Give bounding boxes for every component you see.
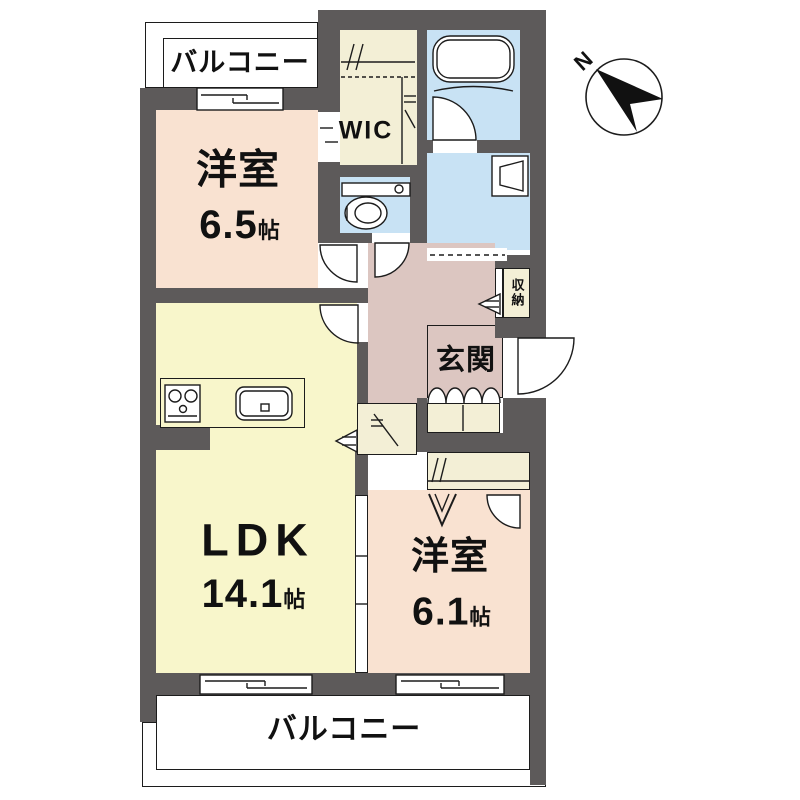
door-arc-icon bbox=[320, 305, 358, 343]
toilet-icon bbox=[342, 183, 410, 229]
genkan-label: 玄関 bbox=[436, 347, 496, 376]
ldk-closet-lines bbox=[371, 414, 398, 446]
bedroom1-size: 6.5帖 bbox=[199, 205, 281, 245]
sliding-window-icon bbox=[200, 675, 312, 694]
ldk-label: LDK bbox=[201, 518, 314, 563]
washing-machine-icon bbox=[492, 156, 528, 196]
bedroom2-size: 6.1帖 bbox=[412, 593, 492, 632]
ldk-size-unit: 帖 bbox=[283, 587, 306, 612]
shoe-cabinet-doors bbox=[428, 388, 500, 431]
kitchen-sink-icon bbox=[236, 387, 292, 420]
bedroom2-size-unit: 帖 bbox=[469, 606, 491, 630]
sliding-door-icon bbox=[320, 128, 338, 142]
door-arc-icon bbox=[433, 97, 476, 140]
ldk-size-value: 14.1 bbox=[202, 572, 284, 616]
balcony-top-label: バルコニー bbox=[170, 50, 309, 77]
bedroom1-size-unit: 帖 bbox=[258, 218, 281, 243]
door-arc-icon bbox=[375, 243, 409, 277]
sliding-window-icon bbox=[197, 88, 283, 110]
storage-label: 収納 bbox=[511, 278, 524, 308]
bedroom1-label: 洋室 bbox=[196, 150, 280, 191]
bedroom2-size-value: 6.1 bbox=[412, 591, 469, 634]
opening-arrow-icon bbox=[336, 430, 357, 452]
stove-icon bbox=[165, 385, 200, 422]
floor-plan: バルコニー 洋室 6.5帖 WIC LDK 14.1帖 洋室 6.1帖 玄関 収… bbox=[0, 0, 800, 800]
folding-door-icon bbox=[429, 494, 456, 525]
door-arc-icon bbox=[487, 495, 520, 528]
entrance-door-arc-icon bbox=[518, 338, 574, 394]
bedroom1-size-value: 6.5 bbox=[199, 203, 258, 247]
partition-ticks bbox=[355, 556, 368, 604]
opening-arrow-icon bbox=[479, 294, 500, 314]
north-arrow-icon bbox=[586, 59, 663, 135]
ldk-size: 14.1帖 bbox=[202, 574, 307, 614]
sliding-window-icon bbox=[396, 675, 504, 694]
bedroom2-label: 洋室 bbox=[411, 538, 489, 576]
plan-linework bbox=[0, 0, 800, 800]
washroom-sill bbox=[427, 248, 507, 261]
bedroom2-closet-lines bbox=[427, 458, 530, 482]
bathtub-icon bbox=[433, 36, 514, 91]
wic-label: WIC bbox=[339, 119, 394, 144]
wic-shelf-lines bbox=[341, 44, 416, 164]
door-arc-icon bbox=[320, 245, 357, 282]
balcony-bottom-label: バルコニー bbox=[267, 715, 421, 745]
